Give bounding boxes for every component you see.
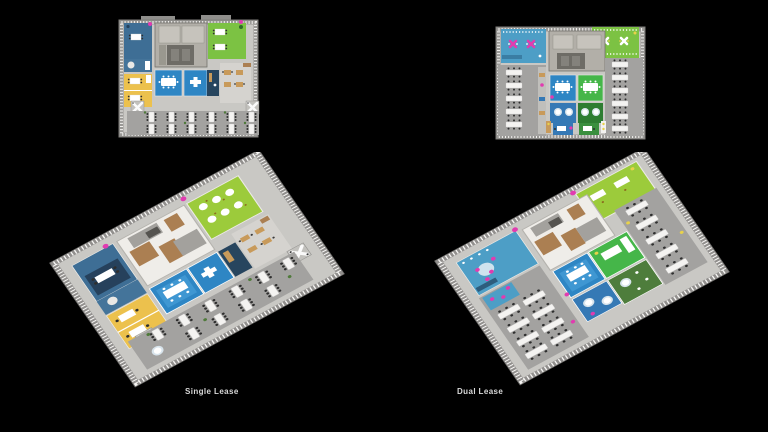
conference-room-1 [155, 70, 182, 96]
desk-zone-right [605, 58, 643, 136]
magenta-sign [148, 22, 152, 26]
conference-room-blue [550, 75, 576, 101]
desk-zone-left [498, 65, 546, 136]
dual-lease-top-plan [493, 25, 648, 142]
magenta-sign [239, 20, 243, 24]
meeting-room-blue [124, 23, 152, 72]
focus-room-green [579, 123, 599, 135]
lounge-teal [501, 29, 546, 63]
conference-room-2 [184, 70, 207, 96]
round-table-room-green [578, 103, 603, 123]
open-desk-zone [127, 111, 259, 135]
single-lease-label: Single Lease [185, 387, 239, 396]
single-lease-iso-plan [42, 152, 358, 408]
single-lease-top-plan [115, 15, 262, 142]
breakout-room-green [208, 23, 246, 59]
canvas: Single Lease Dual Lease [0, 0, 768, 432]
service-core [549, 31, 605, 71]
cafe-area [220, 63, 251, 103]
dual-lease-label: Dual Lease [457, 387, 503, 396]
conference-room-green [578, 75, 603, 101]
dual-lease-iso-plan [425, 152, 741, 408]
round-table-room-blue [550, 103, 576, 123]
lounge-navy [207, 70, 219, 96]
service-core [155, 23, 207, 67]
